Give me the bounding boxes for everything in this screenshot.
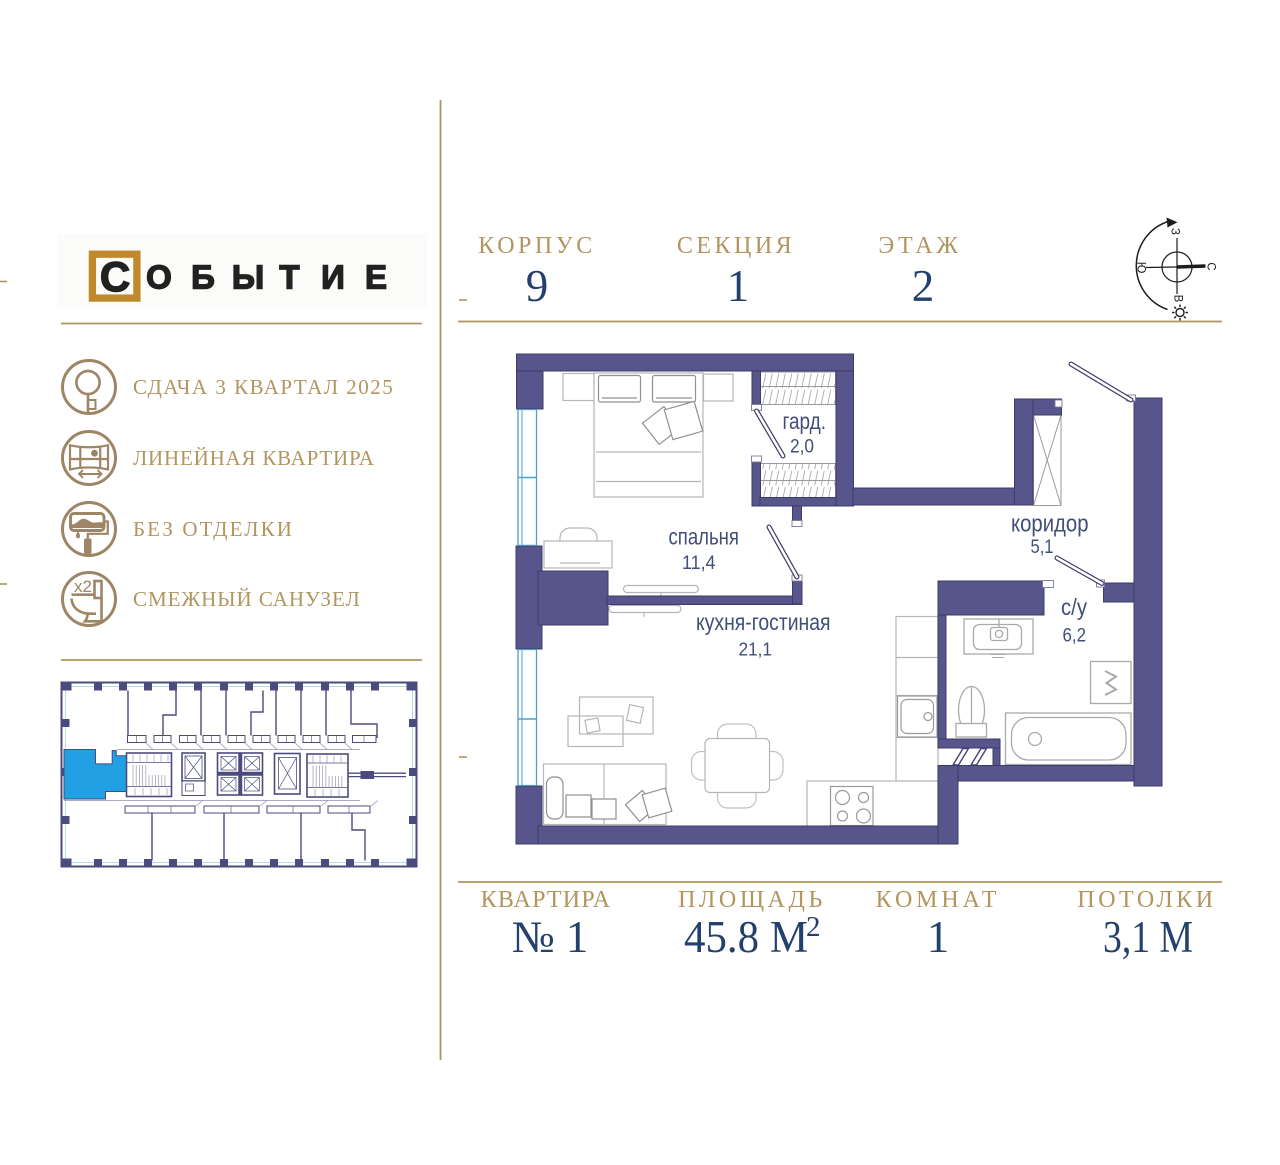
svg-text:гард.: гард.: [783, 408, 827, 434]
svg-text:З: З: [1169, 228, 1181, 235]
svg-text:С: С: [1205, 262, 1217, 270]
svg-text:Б: Б: [191, 259, 215, 296]
svg-text:спальня: спальня: [669, 524, 740, 550]
svg-text:коридор: коридор: [1011, 511, 1089, 538]
svg-text:СЕКЦИЯ: СЕКЦИЯ: [677, 233, 795, 259]
svg-text:БЕЗ ОТДЕЛКИ: БЕЗ ОТДЕЛКИ: [133, 517, 294, 541]
svg-text:Е: Е: [365, 259, 387, 296]
svg-text:2,0: 2,0: [790, 437, 814, 458]
svg-text:x2: x2: [74, 577, 92, 596]
svg-text:21,1: 21,1: [739, 639, 773, 660]
svg-text:Ы: Ы: [232, 259, 264, 296]
svg-text:1: 1: [927, 912, 950, 962]
svg-text:ЭТАЖ: ЭТАЖ: [878, 233, 961, 259]
svg-text:О: О: [146, 259, 172, 296]
svg-text:2: 2: [912, 261, 935, 311]
svg-text:1: 1: [727, 261, 750, 311]
svg-text:С: С: [100, 253, 130, 300]
svg-text:ЛИНЕЙНАЯ КВАРТИРА: ЛИНЕЙНАЯ КВАРТИРА: [133, 446, 375, 470]
svg-text:5,1: 5,1: [1031, 536, 1054, 558]
svg-text:КВАРТИРА: КВАРТИРА: [481, 887, 612, 913]
svg-text:В: В: [1172, 295, 1184, 303]
svg-text:с/у: с/у: [1061, 594, 1087, 620]
svg-text:9: 9: [526, 261, 549, 311]
svg-text:кухня-гостиная: кухня-гостиная: [696, 609, 831, 635]
svg-text:45.8 М: 45.8 М: [684, 912, 808, 962]
svg-text:ПОТОЛКИ: ПОТОЛКИ: [1077, 887, 1216, 913]
svg-text:КОМНАТ: КОМНАТ: [876, 887, 1001, 913]
svg-text:11,4: 11,4: [682, 553, 716, 574]
svg-text:СДАЧА 3 КВАРТАЛ 2025: СДАЧА 3 КВАРТАЛ 2025: [133, 375, 394, 399]
svg-text:3,1 М: 3,1 М: [1103, 912, 1193, 962]
svg-text:И: И: [321, 259, 345, 296]
svg-text:№ 1: № 1: [512, 912, 589, 962]
svg-text:Т: Т: [279, 259, 299, 296]
svg-text:Ю: Ю: [1135, 262, 1147, 274]
svg-text:СМЕЖНЫЙ САНУЗЕЛ: СМЕЖНЫЙ САНУЗЕЛ: [133, 587, 361, 611]
svg-text:ПЛОЩАДЬ: ПЛОЩАДЬ: [678, 887, 826, 913]
svg-text:6,2: 6,2: [1063, 625, 1087, 647]
svg-text:2: 2: [806, 911, 821, 943]
svg-text:КОРПУС: КОРПУС: [478, 233, 595, 259]
